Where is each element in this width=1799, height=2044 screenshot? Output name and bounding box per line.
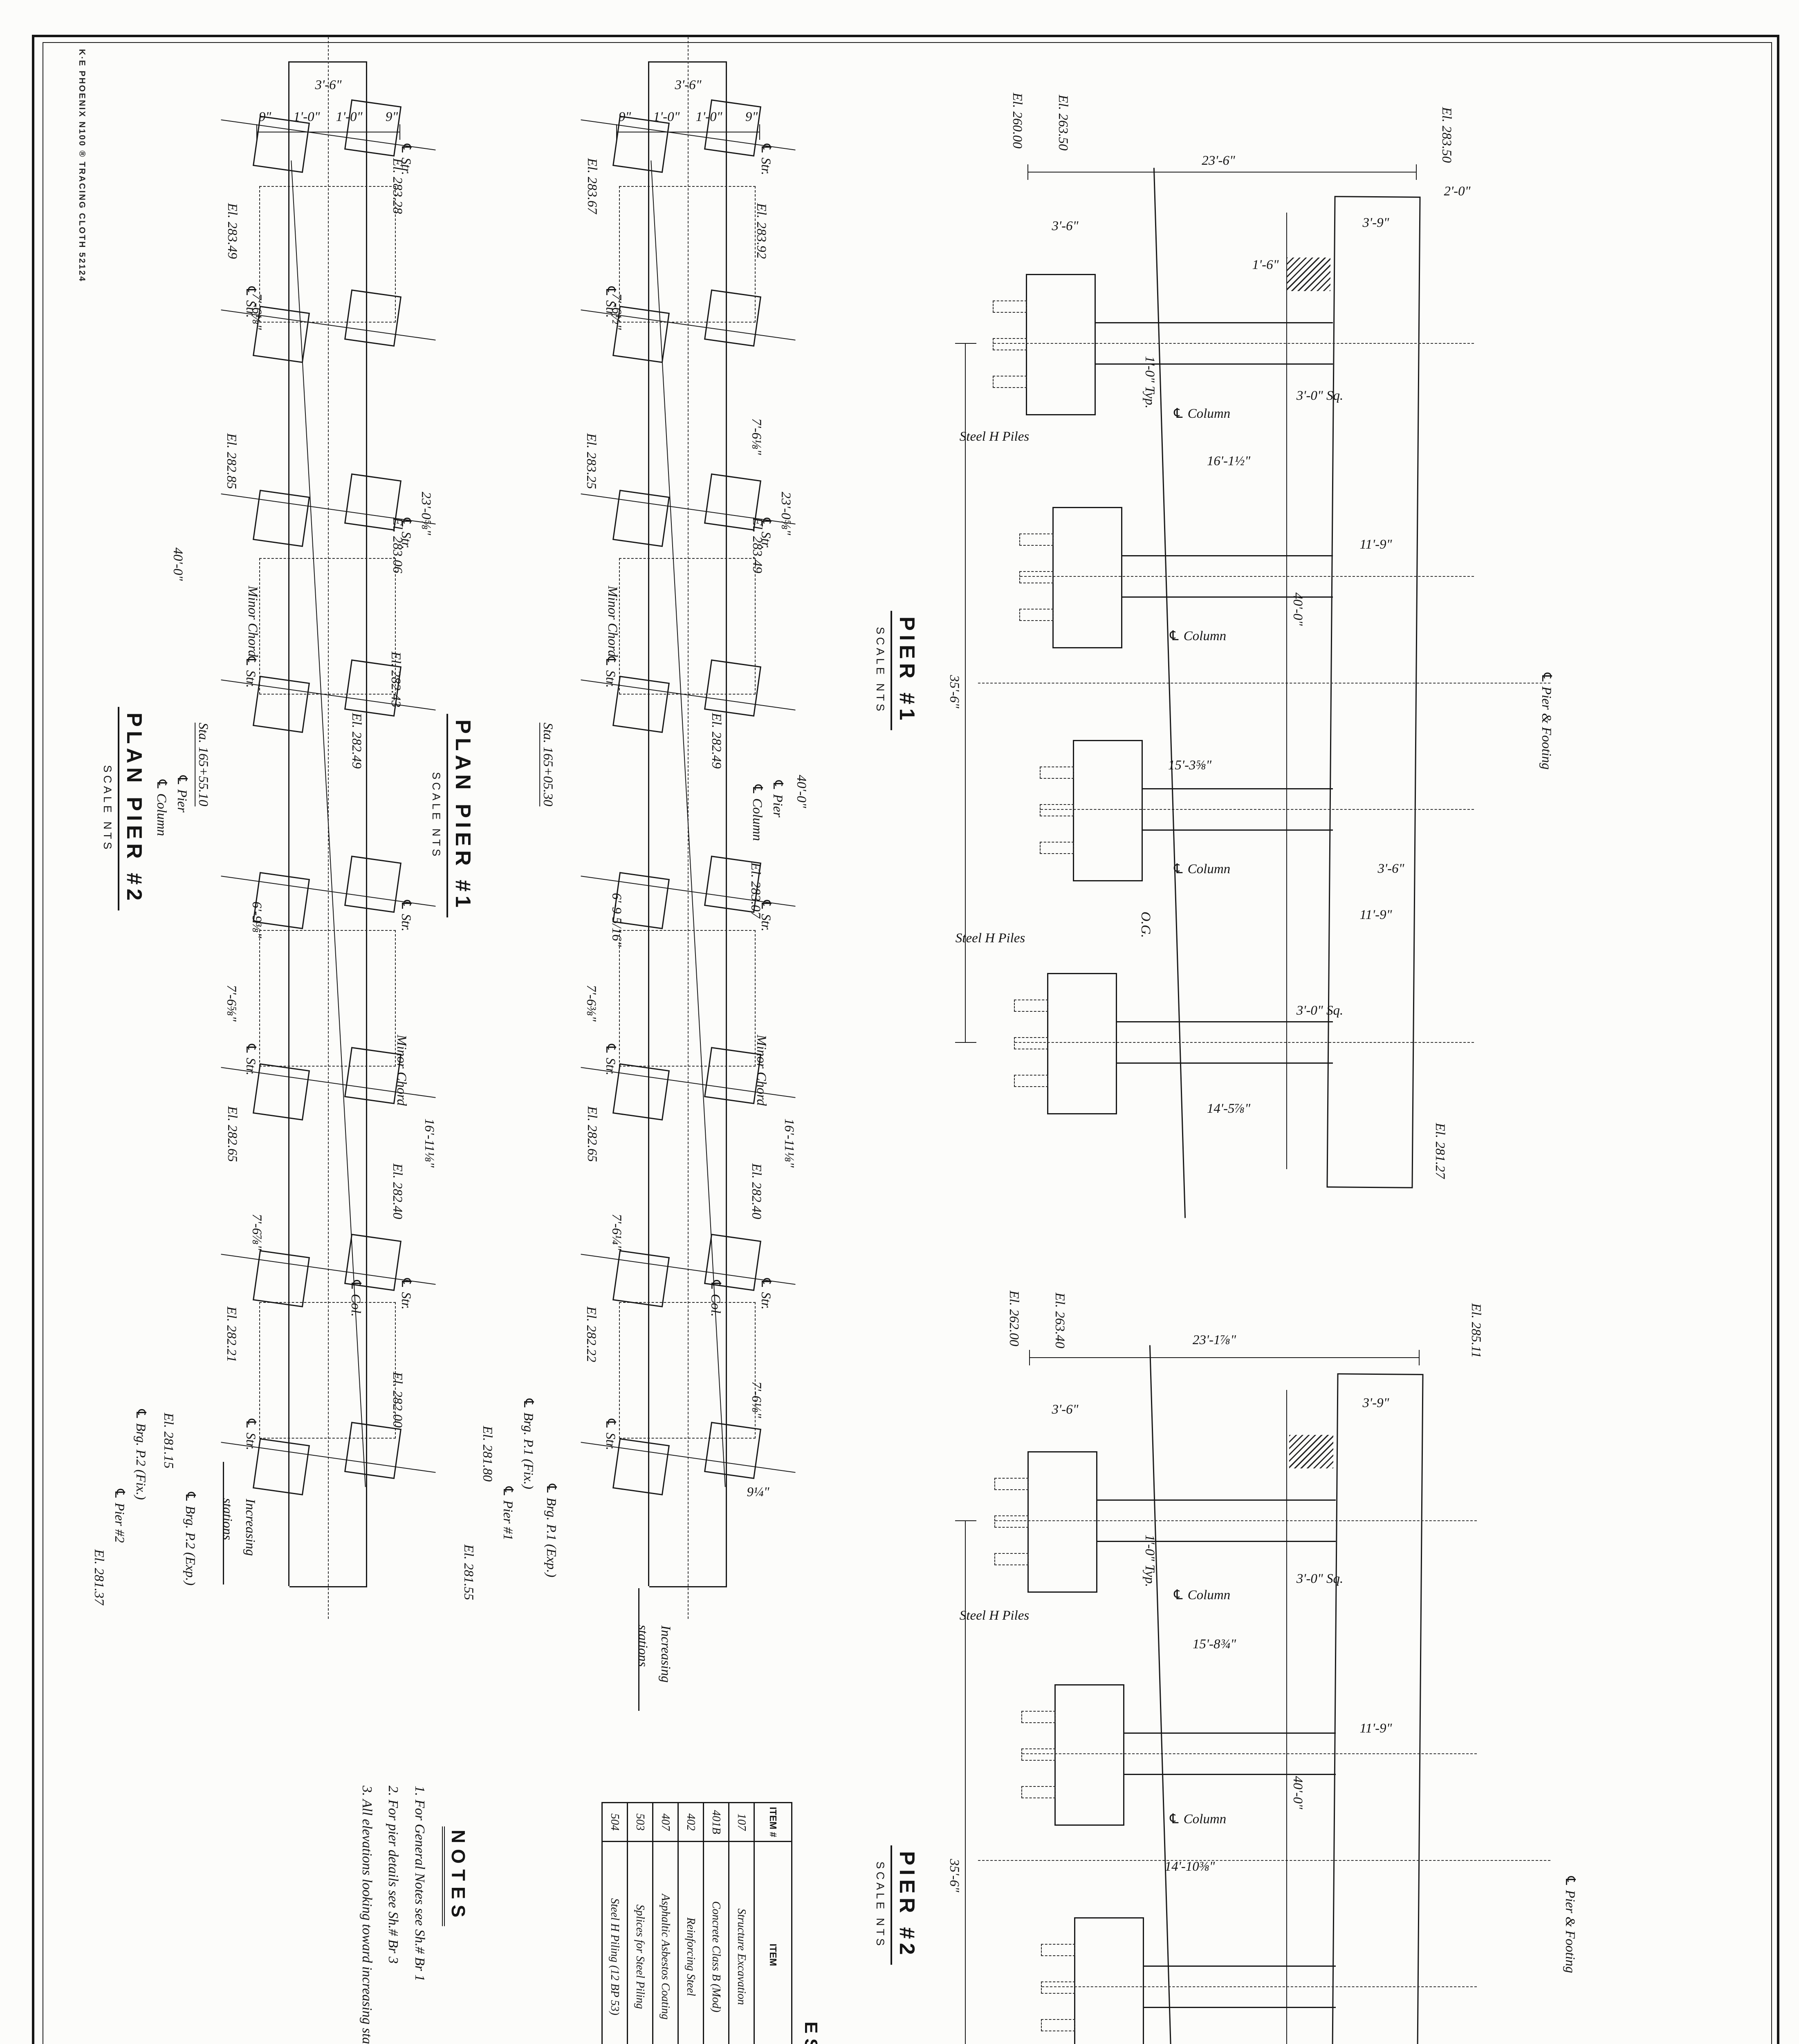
annotation-label: Steel H Piles [960,1609,1029,1623]
h-pile [1040,766,1074,779]
drawing-line [1144,1966,1336,1967]
annotation-label: El. 283.49 [225,203,239,259]
plan-pier1-title: PLAN PIER #1 SCALE NTS [430,714,475,917]
quantities-cell: 402 [678,1803,704,1842]
annotation-label: El. 282.65 [585,1106,599,1162]
annotation-label: 1'-0" [294,110,320,124]
annotation-label: 3'-6" [675,78,702,92]
drawing-line [1143,829,1333,831]
annotation-label: ℄ Col. [709,1278,722,1317]
annotation-label: Minor Chord [395,1035,408,1106]
annotation-label: 15'-8¾" [1193,1637,1236,1651]
slope-hatch [1286,258,1330,291]
annotation-label: 6'-9 5/16" [610,893,624,947]
quantities-table: ITEM #ITEMUNITPIER #1PIER #2FINALNEATOVE… [601,1802,792,2044]
footing-outline [259,930,396,1067]
h-pile [1041,2019,1075,2031]
annotation-label: 35'-6" [947,1859,961,1892]
annotation-label: 1'-6" [1252,258,1279,272]
bearing-plate [612,1438,670,1495]
annotation-label: El. 260.00 [1010,93,1024,149]
quantities-cell: Splices for Steel Piling [628,1842,653,2044]
footing [1054,1684,1124,1826]
annotation-label: 3'-6" [1052,219,1079,233]
pier-centerline [978,683,1550,684]
annotation-label: 15'-3⅝" [1168,758,1211,772]
quantities-cell: 401B [704,1803,729,1842]
annotation-label: ℄ Column [1172,862,1230,876]
notes-list: 1. For General Notes see Sh.# Br 12. For… [353,1786,433,2044]
bearing-plate [704,1422,761,1479]
bearing-plate [344,856,402,913]
annotation-label: ℄ Column [155,778,168,836]
annotation-label: 40'-0" [171,547,185,580]
annotation-label: El. 282.85 [224,433,238,489]
h-pile [1021,1786,1056,1798]
drawing-line [1027,164,1028,180]
footing-outline [619,930,756,1067]
bearing-plate [612,676,670,733]
annotation-label: El. 283.50 [1440,107,1454,163]
annotation-label: El. 283.06 [390,518,404,574]
quantities-cell: 504 [602,1803,628,1842]
quantities-grid: ITEM #ITEMUNITPIER #1PIER #2FINALNEATOVE… [601,1802,792,2044]
drawing-line [1096,363,1333,365]
annotation-label: El. 283.92 [754,203,768,259]
drawing-line [399,124,400,140]
drawing-line [1144,2007,1336,2008]
pier1-elevation-title: PIER #1 SCALE NTS [874,611,919,730]
quantities-cell: Structure Excavation [729,1842,754,2044]
annotation-label: El. 282.21 [224,1307,238,1363]
h-pile [994,1478,1029,1490]
annotation-label: 9" [259,110,271,124]
bearing-plate [344,99,402,157]
pier2-elevation-title: PIER #2 SCALE NTS [874,1845,919,1965]
footing [1052,507,1122,648]
annotation-label: Sta. 165+55.10 [195,723,210,807]
h-pile [1041,1981,1075,1994]
annotation-label: El. 283.49 [750,518,764,574]
quantities-cell: 407 [653,1803,678,1842]
h-pile [993,376,1027,388]
drawing-line [955,1520,976,1521]
plan-pier2-scale: SCALE NTS [101,707,114,910]
annotation-label: stations [636,1625,650,1667]
drawing-line [1286,1390,1287,2044]
annotation-label: ℄ Brg. P.1 (Exp.) [544,1482,558,1577]
annotation-label: 2'-0" [1444,184,1471,198]
note-item: 1. For General Notes see Sh.# Br 1 [406,1786,433,2044]
notes-heading: NOTES [442,1827,469,1926]
h-pile [1014,1000,1048,1012]
annotation-label: El. 282.00 [390,1372,404,1428]
annotation-label: ℄ Pier & Footing [1539,671,1553,769]
annotation-label: 7'-6¼" [610,1214,624,1251]
annotation-label: Steel H Piles [960,430,1029,444]
annotation-label: 3'-9" [1363,1396,1389,1410]
annotation-label: ℄ Str. [603,1042,617,1076]
drawing-line [1122,555,1333,556]
footing-outline [619,1302,756,1439]
annotation-label: Increasing [243,1499,257,1556]
bearing-plate [344,1422,402,1479]
pier2-elevation-title-text: PIER #2 [891,1845,919,1965]
annotation-label: ℄ Str. [603,1417,617,1450]
annotation-label: stations [220,1498,234,1540]
bearing-plate [253,1063,310,1121]
pier-cap [1326,196,1420,1188]
annotation-label: ℄ Str. [759,1277,773,1310]
footing [1073,740,1143,881]
annotation-label: 7'-6⅛" [250,293,264,330]
annotation-label: ℄ Brg. P.2 (Exp.) [183,1490,197,1585]
pier1-elevation-scale: SCALE NTS [874,611,886,730]
drawing-line [1029,1350,1030,1365]
bearing-plate [704,659,761,717]
plan-pier1-scale: SCALE NTS [430,714,442,917]
annotation-label: ℄ Column [750,783,764,841]
drawing-line [1286,213,1287,1169]
footing [1047,973,1117,1114]
annotation-label: 1'-0" Typ. [1143,356,1157,408]
annotation-label: ℄ Str. [759,142,773,175]
bearing-plate [253,1438,310,1495]
bearing-plate [704,1047,761,1104]
drawing-line [1097,1499,1336,1501]
drawing-line [1416,164,1417,180]
annotation-label: 1'-0" Typ. [1143,1535,1157,1587]
plan-pier1-title-text: PLAN PIER #1 [446,714,475,917]
scanned-sheet-viewport: K∙E PHOENIX N100 ® TRACING CLOTH 52124 F… [0,0,1799,2044]
annotation-label: 14'-10⅜" [1165,1860,1215,1874]
annotation-label: El. 282.40 [749,1163,763,1219]
drawing-line [1030,1357,1420,1358]
annotation-label: El. 263.40 [1053,1293,1067,1349]
annotation-label: El. 283.67 [585,158,599,214]
annotation-label: 11'-9" [1360,1721,1392,1735]
annotation-label: ℄ Pier & Footing [1563,1874,1577,1973]
annotation-label: ℄ Pier #1 [501,1485,515,1540]
footing [1074,1917,1144,2044]
annotation-label: 40'-0" [1291,592,1305,625]
annotation-label: 7'-6½" [610,293,624,330]
drawing-line [1124,1774,1336,1775]
h-pile [1040,804,1074,816]
annotation-label: 3'-0" Sq. [1297,1572,1343,1586]
annotation-label: Steel H Piles [956,931,1025,945]
quantities-cell: Concrete Class B (Mod) [704,1842,729,2044]
bearing-plate [612,490,670,547]
annotation-label: ℄ Str. [244,1042,258,1076]
annotation-label: ℄ Column [1168,1812,1226,1826]
h-pile [1041,1944,1075,1956]
annotation-label: ℄ Pier [175,774,189,813]
annotation-label: El. 282.65 [225,1106,239,1162]
plan-pier2-title-text: PLAN PIER #2 [118,707,146,910]
quantities-cell: ITEM [754,1842,792,2044]
annotation-label: El. 282.22 [584,1307,598,1363]
h-pile [1040,842,1074,854]
annotation-label: ℄ Column [1168,629,1226,643]
drawing-line [1097,1541,1336,1542]
annotation-label: 9" [745,110,758,124]
drawing-line [1143,788,1333,789]
annotation-label: 9" [386,110,398,124]
annotation-label: 11'-9" [1360,538,1392,551]
annotation-label: 7'-6⅛" [749,418,763,455]
annotation-label: 7'-6⅞" [250,1214,264,1251]
h-pile [1019,571,1054,583]
drawing-line [1117,1062,1333,1064]
annotation-label: El. 285.11 [1469,1303,1483,1358]
annotation-label: 23'-0⅝" [779,492,793,535]
annotation-label: El. 281.55 [462,1544,476,1600]
annotation-label: 7'-6⅜" [584,985,598,1022]
quantities-cell: Steel H Piling (12 BP 53) [602,1842,628,2044]
drawing-line [1096,322,1333,323]
annotation-label: El. 263.50 [1056,95,1070,151]
pier1-elevation-title-text: PIER #1 [891,611,919,730]
quantities-title: ESTIMATED QUANTITIES [801,2022,821,2044]
annotation-label: 16'-11⅛" [422,1118,436,1168]
annotation-label: 1'-0" [336,110,363,124]
annotation-label: El. 282.40 [390,1163,404,1219]
annotation-label: El. 282.49 [709,713,723,769]
annotation-label: 3'-9" [1363,216,1389,230]
annotation-label: 16'-11⅛" [782,1118,796,1168]
h-pile [1014,1075,1048,1087]
annotation-label: 3'-6" [315,78,342,92]
annotation-label: ℄ Str. [244,1417,258,1450]
bearing-plate [253,490,310,547]
pier-cap [1329,1373,1423,2044]
drawing-sheet: K∙E PHOENIX N100 ® TRACING CLOTH 52124 F… [0,0,1799,2044]
annotation-label: 3'-6" [1052,1403,1079,1416]
annotation-label: 23'-1⅞" [1193,1333,1236,1347]
drawing-line [955,343,976,344]
h-pile [994,1515,1029,1528]
annotation-label: 3'-0" Sq. [1297,1004,1343,1018]
bearing-plate [704,289,761,347]
annotation-label: 23'-0⅝" [419,492,433,535]
h-pile [1021,1711,1056,1723]
annotation-label: El. 283.25 [584,433,598,489]
plan-pier2-title: PLAN PIER #2 SCALE NTS [101,707,146,910]
annotation-label: El. 281.15 [162,1413,175,1469]
footing-outline [259,1302,396,1439]
annotation-label: Increasing [659,1625,673,1683]
note-item: 3. All elevations looking toward increas… [353,1786,380,2044]
annotation-label: El. 281.27 [1433,1123,1447,1179]
quantities-cell: 107 [729,1803,754,1842]
annotation-label: ℄ Str. [244,655,258,688]
annotation-label: El. 282.49 [350,713,363,769]
bearing-plate [253,1250,310,1307]
quantities-cell: Asphaltic Asbestos Coating [653,1842,678,2044]
annotation-label: ℄ Str. [399,899,413,932]
pier2-elevation-scale: SCALE NTS [874,1845,886,1965]
bearing-plate [344,1047,402,1104]
annotation-label: 3'-0" Sq. [1297,389,1343,403]
annotation-label: 40'-0" [794,775,808,808]
annotation-label: ℄ Str. [399,1277,413,1310]
annotation-label: Minor Chord [606,586,619,657]
h-pile [1019,533,1054,546]
annotation-label: 1'-0" [653,110,680,124]
annotation-label: 14'-5⅞" [1207,1102,1250,1116]
annotation-label: El. 262.00 [1007,1291,1021,1347]
annotation-label: 6'-9⅜" [250,901,264,938]
annotation-label: 3'-6" [1378,862,1404,876]
drawing-line [1419,1350,1420,1365]
h-pile [993,338,1027,350]
note-item: 2. For pier details see Sh.# Br 3 [380,1786,406,2044]
annotation-label: Minor Chord [754,1035,768,1106]
annotation-label: 9¼" [747,1485,769,1499]
annotation-label: Sta. 165+05.30 [539,723,555,807]
annotation-label: ℄ Column [1172,1588,1230,1602]
drawing-line [955,1042,976,1043]
annotation-label: ℄ Column [1172,407,1230,421]
bearing-plate [612,1250,670,1307]
h-pile [1014,1037,1048,1049]
annotation-label: El. 283.07 [749,863,763,919]
bearing-plate [612,116,670,173]
pier-centerline [978,1860,1550,1861]
annotation-label: ℄ Str. [603,655,617,688]
footing [1027,1451,1097,1593]
annotation-label: 16'-1½" [1207,454,1250,468]
h-pile [994,1553,1029,1565]
drawing-line [1124,1732,1336,1734]
drawing-line [1028,172,1417,173]
h-pile [993,300,1027,313]
annotation-label: El. 281.80 [480,1426,494,1482]
bearing-plate [704,99,761,157]
annotation-label: 35'-6" [947,675,961,708]
annotation-label: El. 282.43 [389,652,403,708]
annotation-label: El. 281.37 [92,1549,106,1605]
quantities-cell: ITEM # [754,1803,792,1842]
tracing-cloth-stamp: K∙E PHOENIX N100 ® TRACING CLOTH 52124 [77,49,87,282]
quantities-cell: 503 [628,1803,653,1842]
annotation-label: El. 283.28 [390,158,404,214]
drawing-line [965,1521,966,2044]
annotation-label: 7'-6⅝" [224,985,238,1022]
annotation-label: Minor Chord [246,586,260,657]
annotation-label: ℄ Pier [771,779,785,818]
bearing-plate [612,1063,670,1121]
annotation-label: O.G. [1139,912,1153,938]
annotation-label: ℄ Pier #2 [112,1487,126,1543]
annotation-label: 1'-0" [696,110,722,124]
slope-hatch [1289,1435,1333,1468]
annotation-label: 11'-9" [1360,908,1392,922]
h-pile [1019,609,1054,621]
bearing-plate [253,676,310,733]
footing [1026,274,1096,415]
bearing-plate [344,289,402,347]
annotation-label: 9" [619,110,631,124]
annotation-label: 23'-6" [1202,154,1235,168]
annotation-label: ℄ Brg. P.1 (Fix.) [521,1397,535,1489]
annotation-label: 7'-6⅛" [749,1381,763,1418]
drawing-line [759,124,760,140]
quantities-cell: Reinforcing Steel [678,1842,704,2044]
annotation-label: ℄ Col. [349,1278,363,1317]
annotation-label: 40'-0" [1291,1776,1305,1809]
drawing-line [1117,1021,1333,1022]
annotation-label: ℄ Brg. P.2 (Fix.) [134,1407,148,1500]
bearing-plate [253,116,310,173]
h-pile [1021,1748,1056,1761]
